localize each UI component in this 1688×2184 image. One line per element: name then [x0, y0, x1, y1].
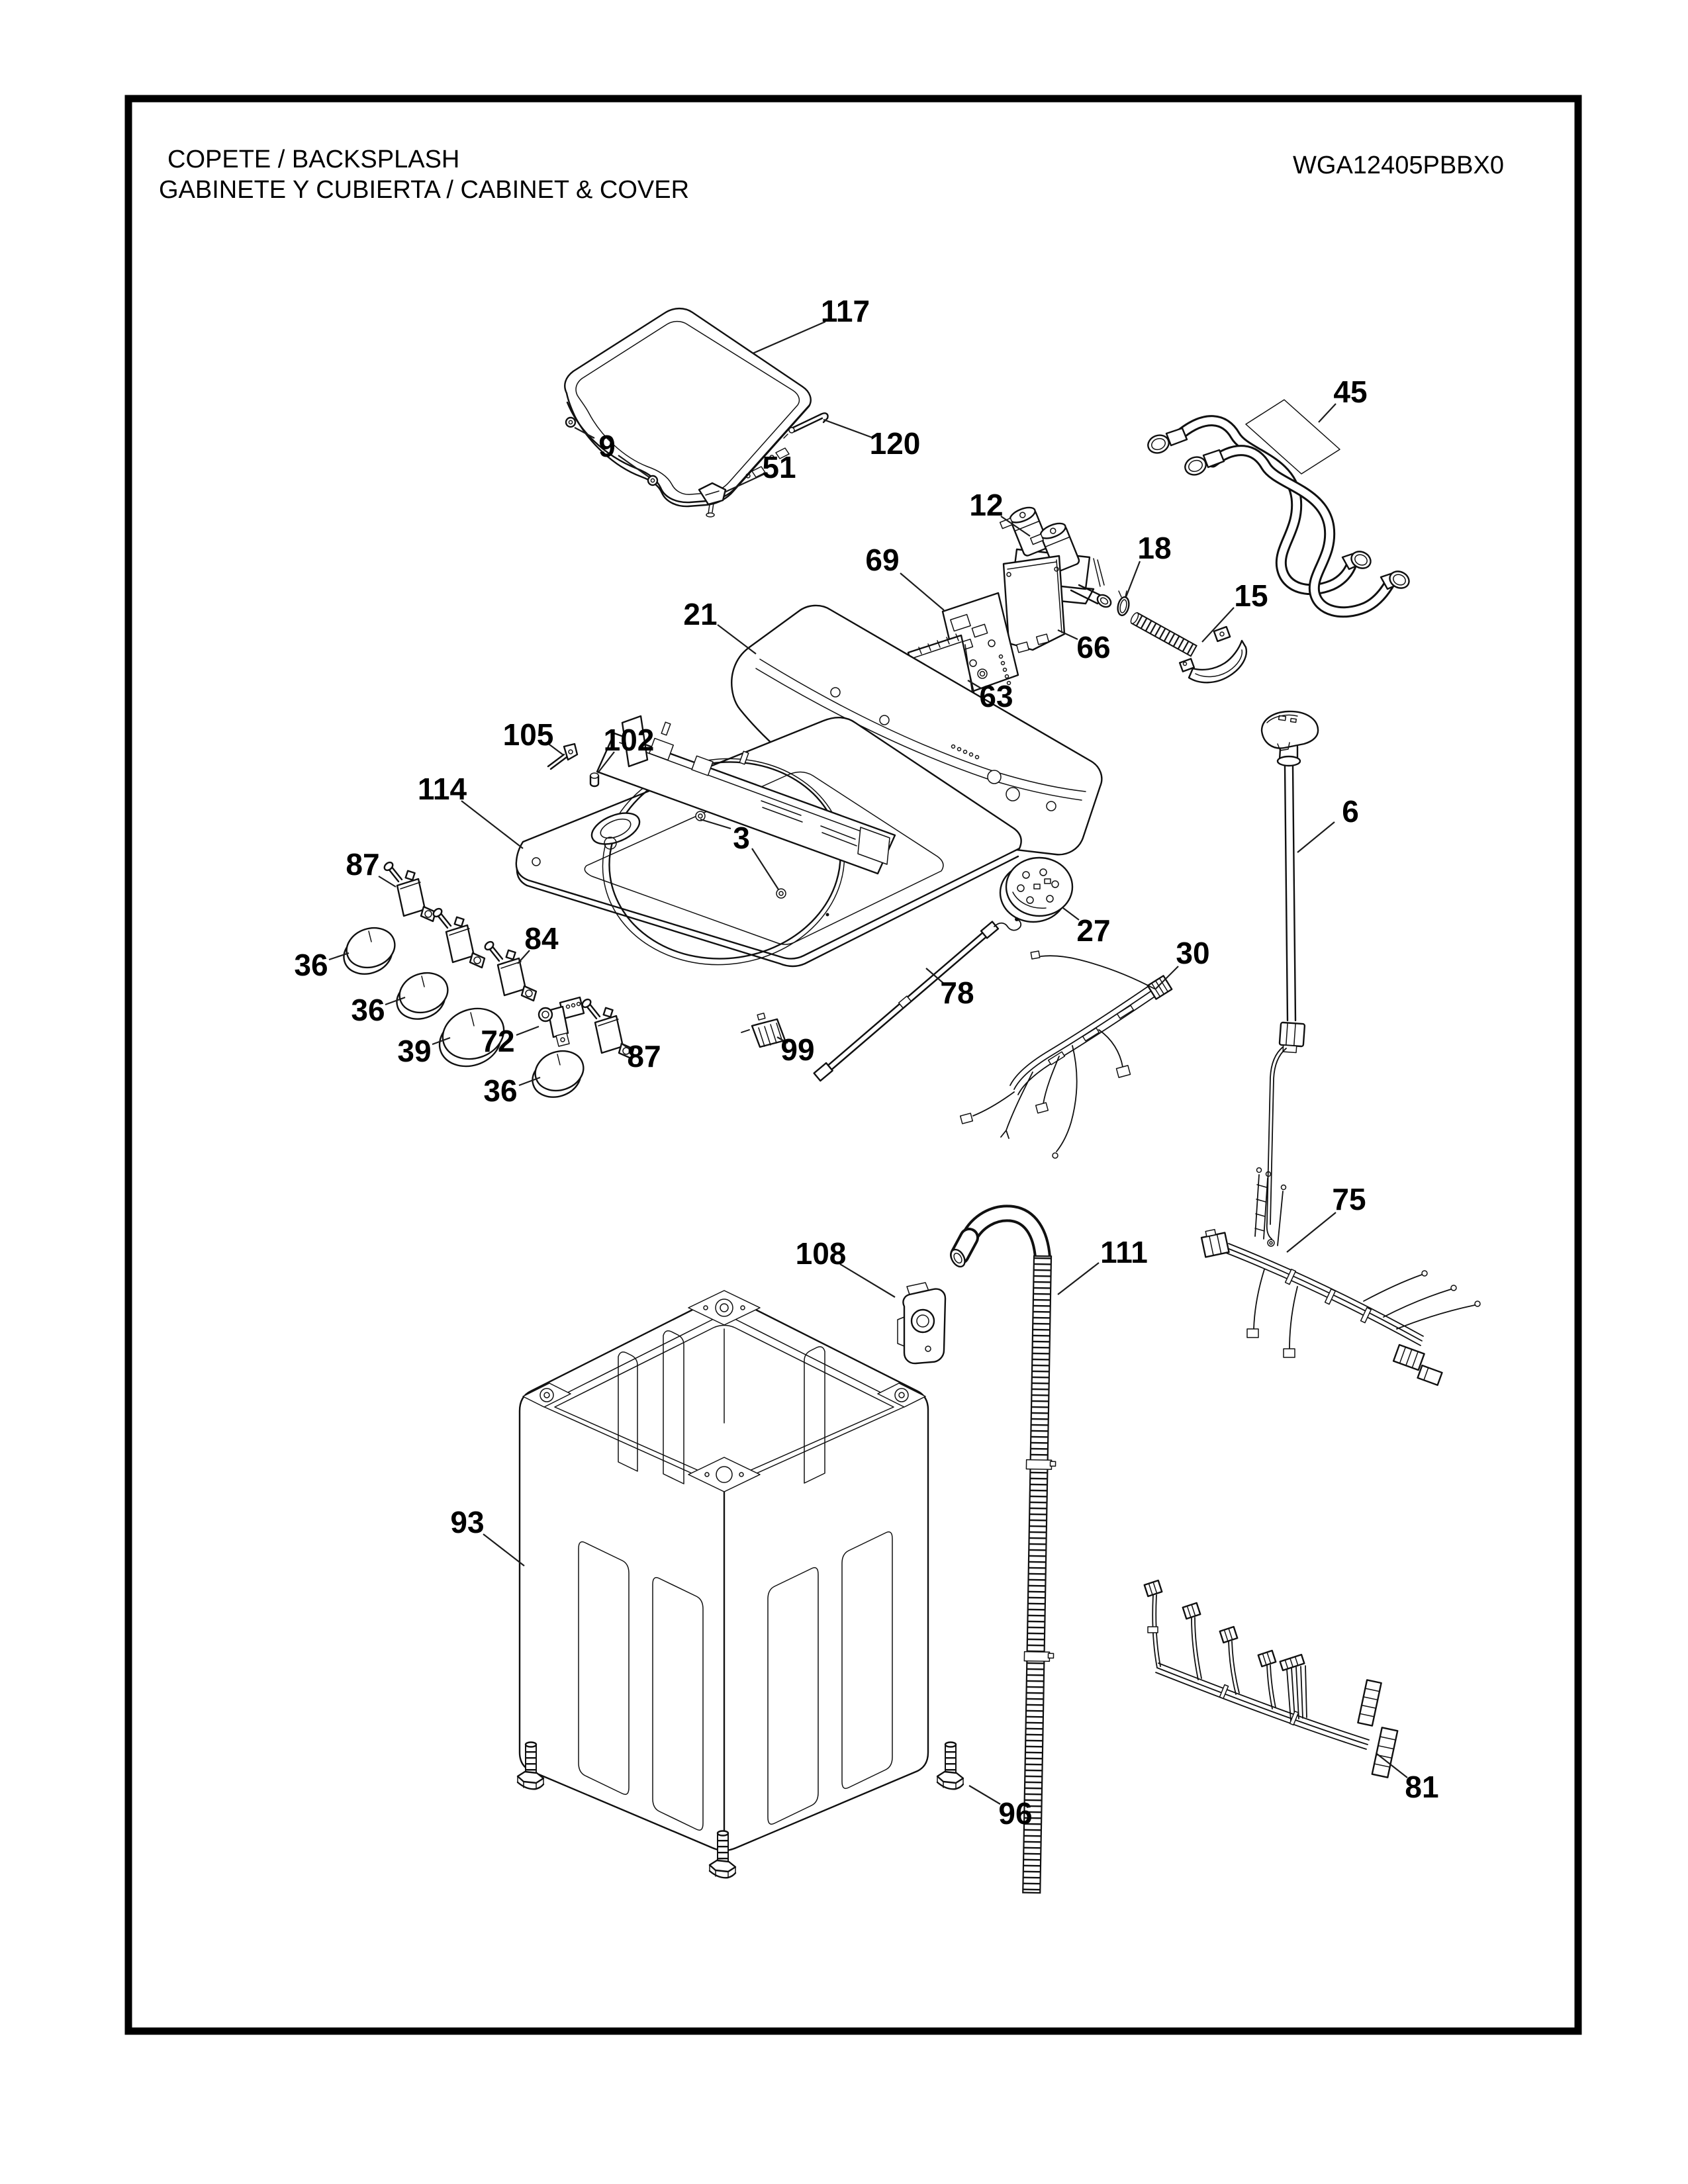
leader-line: [1297, 822, 1335, 852]
callout-111: 111: [1058, 1235, 1148, 1295]
doc-title-line1: COPETE / BACKSPLASH: [167, 146, 459, 173]
part-number-label: 108: [796, 1236, 847, 1271]
nut-102: [590, 773, 598, 786]
drain-hose-111: [948, 1213, 1060, 1893]
wire-harness-30: [961, 951, 1172, 1158]
part-number-label: 9: [598, 429, 616, 463]
screw-hole-3: [776, 889, 786, 898]
parts-diagram-page: COPETE / BACKSPLASH GABINETE Y CUBIERTA …: [0, 0, 1688, 2184]
switch-aux: [432, 907, 485, 968]
callout-27: 27: [1063, 908, 1111, 948]
part-number-label: 93: [450, 1505, 484, 1539]
leader-line: [969, 1786, 1000, 1804]
part-number-label: 3: [733, 821, 750, 855]
callout-21: 21: [683, 597, 756, 654]
part-number-label: 12: [969, 488, 1003, 522]
callout-6: 6: [1297, 794, 1359, 852]
part-number-label: 21: [683, 597, 717, 631]
part-number-label: 87: [346, 847, 379, 882]
callout-18: 18: [1126, 531, 1172, 597]
part-number-label: 81: [1405, 1770, 1438, 1804]
terminal-block-99: [741, 1013, 785, 1047]
callout-108: 108: [796, 1236, 895, 1297]
part-number-label: 36: [294, 948, 328, 982]
pressure-dome-27: [1000, 858, 1072, 922]
part-number-label: 102: [604, 723, 655, 757]
callout-81: 81: [1377, 1754, 1439, 1804]
part-number-label: 6: [1342, 794, 1359, 829]
part-number-label: 66: [1076, 630, 1110, 664]
leader-line: [516, 1026, 539, 1035]
callout-36: 36: [294, 948, 349, 982]
part-number-label: 51: [762, 450, 796, 484]
leader-line: [483, 1534, 524, 1566]
knob-36-b: [392, 967, 453, 1025]
part-number-label: 117: [821, 294, 870, 328]
leader-line: [718, 625, 756, 654]
hose-clamp-18: [1116, 591, 1130, 616]
callout-114: 114: [418, 772, 523, 848]
part-number-label: 78: [940, 976, 974, 1010]
hose-coupling: [1183, 450, 1224, 478]
part-number-label: 84: [524, 921, 559, 956]
mounting-plate-66: [1004, 556, 1064, 653]
callout-69: 69: [865, 543, 944, 610]
leader-line: [900, 573, 944, 610]
part-number-label: 39: [397, 1034, 431, 1068]
part-number-label: 15: [1234, 578, 1268, 613]
print-dot: [826, 913, 829, 917]
switch-87-a: [383, 861, 436, 921]
part-number-label: 105: [503, 717, 554, 752]
part-number-label: 30: [1176, 936, 1209, 970]
part-number-label: 99: [780, 1032, 814, 1067]
callout-36: 36: [483, 1073, 540, 1108]
part-number-label: 63: [979, 679, 1013, 713]
dispenser-6: [1262, 711, 1318, 1246]
leader-line: [461, 801, 523, 848]
callout-84: 84: [518, 921, 559, 964]
leader-line: [1058, 1263, 1099, 1295]
hose-clip-108: [898, 1283, 945, 1363]
knob-36-a: [339, 922, 400, 980]
callout-87: 87: [621, 1039, 661, 1073]
cabinet-93: [520, 1291, 928, 1850]
part-number-label: 75: [1332, 1182, 1366, 1216]
part-number-label: 45: [1333, 375, 1367, 409]
callout-72: 72: [481, 1024, 539, 1058]
callout-66: 66: [1058, 630, 1111, 664]
leader-line: [823, 420, 874, 438]
inlet-extension-15: [1129, 612, 1246, 682]
switch-87-b: [581, 998, 633, 1058]
callout-105: 105: [503, 717, 563, 754]
leader-line: [1287, 1212, 1336, 1252]
leader-line: [379, 876, 396, 887]
model-number: WGA12405PBBX0: [1293, 152, 1504, 179]
callout-75: 75: [1287, 1182, 1366, 1252]
leader-line: [1126, 561, 1140, 597]
knob-36-c: [528, 1045, 588, 1103]
part-number-label: 69: [865, 543, 899, 577]
hose-coupling: [1146, 428, 1187, 456]
leader-line: [840, 1264, 895, 1297]
callout-45: 45: [1319, 375, 1368, 422]
callout-117: 117: [753, 294, 870, 353]
callout-120: 120: [823, 420, 920, 461]
diagram-svg: COPETE / BACKSPLASH GABINETE Y CUBIERTA …: [0, 0, 1688, 2184]
callout-99: 99: [777, 1032, 815, 1067]
encoder-72: [539, 997, 584, 1046]
callout-30: 30: [1156, 936, 1210, 989]
doc-title-line2: GABINETE Y CUBIERTA / CABINET & COVER: [159, 176, 689, 204]
callout-93: 93: [450, 1505, 524, 1566]
part-number-label: 18: [1137, 531, 1171, 565]
callout-15: 15: [1202, 578, 1268, 642]
part-number-label: 27: [1076, 913, 1110, 948]
part-number-label: 36: [351, 993, 385, 1027]
wire-harness-81: [1145, 1580, 1397, 1778]
part-number-label: 87: [627, 1039, 661, 1073]
screw-hole-3: [696, 811, 705, 821]
callout-78: 78: [926, 968, 974, 1010]
fill-tube-78: [814, 917, 1021, 1081]
part-number-label: 96: [998, 1796, 1032, 1831]
callout-96: 96: [969, 1786, 1033, 1831]
part-number-label: 114: [418, 772, 467, 806]
part-number-label: 120: [870, 426, 921, 461]
leader-line: [753, 322, 825, 353]
part-number-label: 111: [1100, 1235, 1148, 1269]
inlet-hoses-45: [1146, 400, 1412, 612]
part-number-label: 36: [483, 1073, 517, 1108]
bracket-tab: [1214, 627, 1230, 641]
part-number-label: 72: [481, 1024, 514, 1058]
